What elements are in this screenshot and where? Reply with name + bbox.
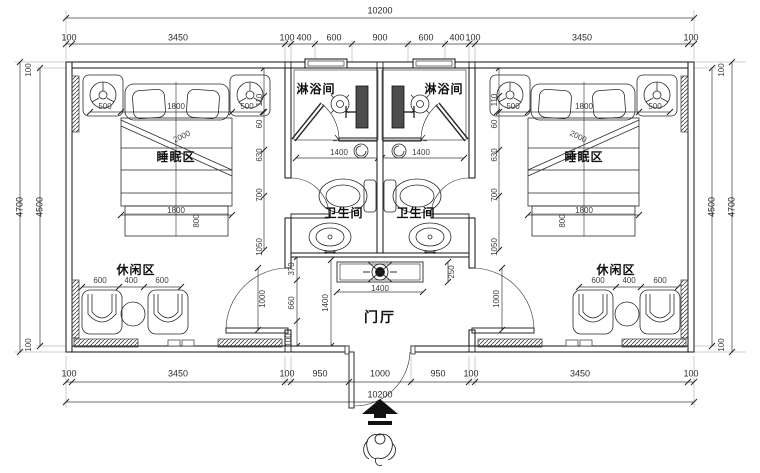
side-table xyxy=(615,302,639,326)
ceiling-fan-icon xyxy=(363,262,397,282)
wall-right xyxy=(688,62,694,352)
room-label-leisure-right: 休闲区 xyxy=(596,264,635,276)
side-table xyxy=(121,302,145,326)
dim-door-width: 1000 xyxy=(259,290,267,308)
dim-stack-3: 700 xyxy=(256,188,264,201)
dim-overall-bottom: 10200 xyxy=(367,391,392,400)
dim-left-inner: 4500 xyxy=(36,197,45,217)
dim-bed-width: 1800 xyxy=(167,103,185,111)
dim-bed-foot-depth: 800 xyxy=(559,214,567,227)
floor-drain-icon xyxy=(411,95,429,113)
entrance-arrow-icon xyxy=(362,399,398,425)
dim-bot-7: 3450 xyxy=(570,370,590,379)
room-label-sleep-right: 睡眠区 xyxy=(564,151,603,163)
dim-stack-1: 60 xyxy=(256,120,264,129)
dim-stack-4: 1050 xyxy=(491,238,499,256)
hall-console xyxy=(337,262,423,282)
dim-bot-0: 100 xyxy=(61,370,76,379)
dim-hall-stack-1: 660 xyxy=(288,296,296,309)
dim-bot-6: 100 xyxy=(463,370,478,379)
armchair xyxy=(148,290,188,334)
dim-bed-foot-depth: 800 xyxy=(193,214,201,227)
dim-overall-top: 10200 xyxy=(367,7,392,16)
dim-top-5: 900 xyxy=(372,34,387,43)
room-label-hall: 门厅 xyxy=(364,310,396,324)
dim-leisure-2: 600 xyxy=(653,277,666,285)
room-label-sleep-left: 睡眠区 xyxy=(156,151,195,163)
dim-top-3: 400 xyxy=(296,34,311,43)
window-top-left xyxy=(305,59,347,68)
dim-bot-5: 950 xyxy=(430,370,445,379)
dim-bed-side: 500 xyxy=(506,103,519,111)
dim-bath-width: 1400 xyxy=(412,149,430,157)
dim-console-depth: 250 xyxy=(448,265,456,278)
dim-bed-foot: 1800 xyxy=(167,207,185,215)
dim-hall-stack-0: 370 xyxy=(288,262,296,275)
floor-drain-icon xyxy=(331,95,349,113)
armchair xyxy=(573,290,613,334)
floorplan-canvas xyxy=(0,0,760,473)
floorplan-page: 10200 10200 100 3450 100 400 600 900 600… xyxy=(0,0,760,473)
dim-top-10: 100 xyxy=(683,34,698,43)
dim-stack-2: 630 xyxy=(491,148,499,161)
dim-bed-width: 1800 xyxy=(575,103,593,111)
dim-bed-foot: 1800 xyxy=(575,207,593,215)
dim-top-7: 400 xyxy=(449,34,464,43)
dim-bot-3: 950 xyxy=(312,370,327,379)
armchair xyxy=(82,290,122,334)
dim-hall-stack-2: 100 xyxy=(285,333,293,346)
dim-bed-side: 500 xyxy=(98,103,111,111)
dim-top-2: 100 xyxy=(279,34,294,43)
dim-bed-side: 500 xyxy=(240,103,253,111)
dim-stack-0: 110 xyxy=(256,94,264,107)
dim-stack-1: 60 xyxy=(491,120,499,129)
dim-wall-bl: 100 xyxy=(25,338,33,351)
dim-bot-8: 100 xyxy=(683,370,698,379)
dim-stack-4: 1050 xyxy=(256,238,264,256)
dim-wall-br: 100 xyxy=(718,338,726,351)
bathroom-door xyxy=(431,178,469,218)
dim-leisure-1: 400 xyxy=(124,277,137,285)
dim-stack-3: 700 xyxy=(491,188,499,201)
dim-wall-tl: 100 xyxy=(25,63,33,76)
dim-left-outer: 4700 xyxy=(16,197,25,217)
dim-right-inner: 4500 xyxy=(708,197,717,217)
dim-top-4: 600 xyxy=(326,34,341,43)
dim-leisure-2: 600 xyxy=(155,277,168,285)
dim-top-0: 100 xyxy=(61,34,76,43)
dim-stack-2: 630 xyxy=(256,148,264,161)
window-top-right xyxy=(413,59,455,68)
dim-leisure-1: 400 xyxy=(622,277,635,285)
dim-wall-tr: 100 xyxy=(718,63,726,76)
leisure-right xyxy=(573,290,680,334)
dim-top-1: 3450 xyxy=(168,34,188,43)
room-label-shower-right: 淋浴间 xyxy=(424,83,463,95)
room-label-toilet-right: 卫生间 xyxy=(396,207,435,219)
dim-door-width: 1000 xyxy=(493,290,501,308)
dim-top-8: 100 xyxy=(465,34,480,43)
wall-left xyxy=(66,62,72,352)
dim-right-outer: 4700 xyxy=(728,197,737,217)
room-label-leisure-left: 休闲区 xyxy=(116,264,155,276)
room-label-shower-left: 淋浴间 xyxy=(296,83,335,95)
person-icon xyxy=(364,434,396,466)
sink xyxy=(309,223,351,254)
dim-bot-1: 3450 xyxy=(168,370,188,379)
dim-leisure-0: 600 xyxy=(93,277,106,285)
dim-bot-4: 1000 xyxy=(370,370,390,379)
bathroom-door xyxy=(291,178,329,218)
dim-top-9: 3450 xyxy=(572,34,592,43)
wall-top xyxy=(66,62,694,68)
dim-bath-width: 1400 xyxy=(330,149,348,157)
sink xyxy=(409,223,451,254)
dim-leisure-0: 600 xyxy=(591,277,604,285)
armchair xyxy=(640,290,680,334)
dim-bot-2: 100 xyxy=(279,370,294,379)
dim-console-width: 1400 xyxy=(371,285,389,293)
dim-hall-depth: 1400 xyxy=(322,294,330,312)
room-label-toilet-left: 卫生间 xyxy=(324,207,363,219)
wall-hall xyxy=(291,253,469,257)
leisure-left xyxy=(82,290,188,334)
dim-top-6: 600 xyxy=(418,34,433,43)
dim-stack-0: 110 xyxy=(491,94,499,107)
dim-bed-side: 500 xyxy=(648,103,661,111)
